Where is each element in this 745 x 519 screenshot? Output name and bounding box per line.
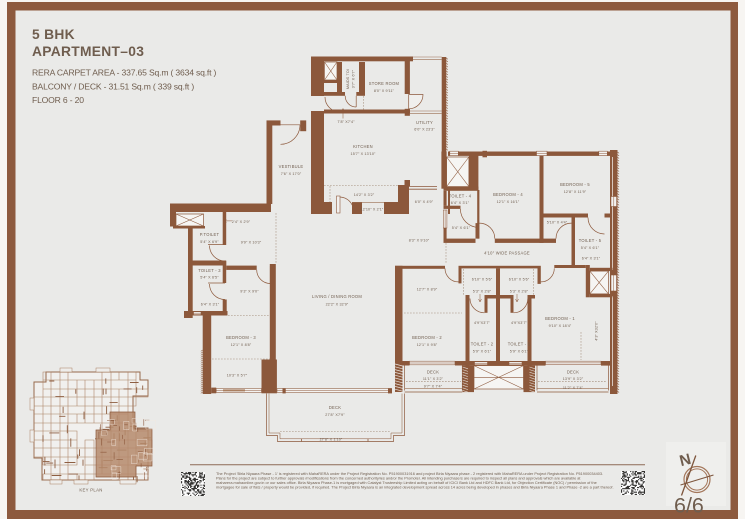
svg-text:TOILET - 5: TOILET - 5	[579, 238, 602, 243]
svg-text:15'7" X 13'10": 15'7" X 13'10"	[351, 152, 377, 156]
svg-text:13'9" X 3'2": 13'9" X 3'2"	[563, 377, 584, 381]
svg-text:9'7" X 7'4": 9'7" X 7'4"	[424, 385, 443, 389]
svg-text:6/6: 6/6	[674, 494, 704, 518]
svg-text:9'10" X 18'4": 9'10" X 18'4"	[549, 324, 572, 328]
svg-text:22'2" X 32'9": 22'2" X 32'9"	[326, 303, 349, 307]
svg-text:BEDROOM - 5: BEDROOM - 5	[560, 182, 590, 187]
svg-text:LIVING / DINING ROOM: LIVING / DINING ROOM	[312, 294, 362, 299]
svg-text:MAIDS TOI: MAIDS TOI	[346, 69, 350, 89]
svg-text:5'3" X 2'8": 5'3" X 2'8"	[473, 290, 492, 294]
svg-text:7'8" X7'4": 7'8" X7'4"	[337, 120, 355, 124]
svg-text:12'8" X 11'9": 12'8" X 11'9"	[564, 190, 587, 194]
svg-text:2'4" X 2'9": 2'4" X 2'9"	[232, 220, 251, 224]
svg-text:4'9"X3'7": 4'9"X3'7"	[511, 321, 528, 325]
svg-text:5 BHK: 5 BHK	[32, 27, 75, 42]
svg-text:12'10" X 2'1": 12'10" X 2'1"	[361, 208, 384, 212]
svg-text:6'0" X 23'3": 6'0" X 23'3"	[414, 128, 435, 132]
svg-text:5'10" X 4'4": 5'10" X 4'4"	[547, 221, 568, 225]
svg-text:Plans for the project are subj: Plans for the project are subject to fur…	[216, 476, 581, 480]
svg-text:5'4" X 6'1": 5'4" X 6'1"	[452, 226, 471, 230]
svg-text:6'4" X 3'1": 6'4" X 3'1"	[201, 303, 220, 307]
svg-text:6'10" X 5'6": 6'10" X 5'6"	[509, 278, 530, 282]
svg-text:14'2" X 3'2": 14'2" X 3'2"	[354, 193, 375, 197]
svg-text:RERA CARPET AREA - 337.65 Sq.m: RERA CARPET AREA - 337.65 Sq.m ( 3634 sq…	[32, 68, 217, 78]
svg-text:DECK: DECK	[329, 405, 341, 410]
svg-text:5'9" X 6'1": 5'9" X 6'1"	[510, 350, 529, 354]
svg-text:9'3" X 9'0": 9'3" X 9'0"	[240, 290, 259, 294]
svg-text:APARTMENT–03: APARTMENT–03	[32, 44, 144, 59]
svg-text:TOILET - 2: TOILET - 2	[471, 342, 494, 347]
svg-text:5'3" X 2'8": 5'3" X 2'8"	[510, 290, 529, 294]
svg-text:6'4" X 3'1": 6'4" X 3'1"	[451, 201, 470, 205]
svg-text:12'1" X 16'1": 12'1" X 16'1"	[497, 200, 520, 204]
svg-text:DECK: DECK	[427, 370, 439, 375]
svg-text:TOILET - 1: TOILET - 1	[508, 342, 531, 347]
svg-text:P.TOILET: P.TOILET	[200, 232, 220, 237]
svg-text:BALCONY / DECK - 31.51 Sq.m (: BALCONY / DECK - 31.51 Sq.m ( 339 sq.ft …	[32, 82, 194, 92]
svg-text:10'3" X 5'7": 10'3" X 5'7"	[227, 374, 248, 378]
svg-text:4'3" X32'0": 4'3" X32'0"	[595, 321, 599, 341]
svg-text:BEDROOM - 1: BEDROOM - 1	[545, 316, 575, 321]
svg-text:6'0" X 4'9": 6'0" X 4'9"	[415, 200, 434, 204]
svg-text:6'10" X 5'6": 6'10" X 5'6"	[472, 278, 493, 282]
svg-text:KEY PLAN: KEY PLAN	[79, 488, 102, 493]
svg-text:9'9" X 10'3": 9'9" X 10'3"	[241, 241, 262, 245]
svg-text:KITCHEN: KITCHEN	[353, 144, 373, 149]
svg-text:3'7" X 6'7": 3'7" X 6'7"	[352, 69, 356, 88]
svg-text:8'0" X 9'11": 8'0" X 9'11"	[374, 89, 395, 93]
svg-text:4'10" WIDE PASSAGE: 4'10" WIDE PASSAGE	[484, 251, 530, 256]
svg-text:BEDROOM - 2: BEDROOM - 2	[412, 335, 442, 340]
svg-text:12'1" X 9'8": 12'1" X 9'8"	[417, 343, 438, 347]
svg-text:7'6" X 17'0": 7'6" X 17'0"	[281, 172, 302, 176]
svg-text:5'9" X 6'1": 5'9" X 6'1"	[473, 350, 492, 354]
svg-text:The Project 'Birla Niyaara Pha: The Project 'Birla Niyaara Phase - 1' is…	[216, 472, 603, 476]
svg-text:4'9"X3'7": 4'9"X3'7"	[474, 321, 491, 325]
svg-text:STORE ROOM: STORE ROOM	[369, 81, 400, 86]
svg-text:TOILET - 4: TOILET - 4	[449, 194, 472, 199]
svg-text:27'8" X 1'10": 27'8" X 1'10"	[320, 437, 343, 441]
svg-text:maharera.mahaonline.gov.in or: maharera.mahaonline.gov.in or our sales …	[216, 481, 597, 485]
svg-text:11'2" X 7'4": 11'2" X 7'4"	[563, 386, 584, 390]
svg-text:DECK: DECK	[567, 370, 579, 375]
svg-text:27'8" X7'9": 27'8" X7'9"	[325, 413, 345, 417]
svg-text:5'4" X 6'1": 5'4" X 6'1"	[581, 246, 600, 250]
svg-text:5'4" X 6'5": 5'4" X 6'5"	[200, 276, 219, 280]
svg-text:TOILET - 3: TOILET - 3	[198, 268, 221, 273]
svg-text:FLOOR 6 - 20: FLOOR 6 - 20	[32, 95, 84, 105]
svg-text:UTILITY: UTILITY	[416, 120, 433, 125]
svg-text:11'1" X 3'2": 11'1" X 3'2"	[423, 377, 444, 381]
svg-text:mortgagee for sale of flats /: mortgagee for sale of flats / property w…	[216, 485, 614, 489]
svg-text:12'1" X 8'8": 12'1" X 8'8"	[231, 343, 252, 347]
svg-text:BEDROOM - 4: BEDROOM - 4	[493, 192, 523, 197]
svg-text:VESTIBULE: VESTIBULE	[279, 164, 304, 169]
svg-text:8'3" X 9'10": 8'3" X 9'10"	[409, 239, 430, 243]
svg-text:5'4" X 6'9": 5'4" X 6'9"	[200, 240, 219, 244]
svg-text:6'4" X 3'1": 6'4" X 3'1"	[582, 257, 601, 261]
svg-text:12'7" X 8'9": 12'7" X 8'9"	[417, 288, 438, 292]
svg-text:BEDROOM - 3: BEDROOM - 3	[226, 335, 256, 340]
